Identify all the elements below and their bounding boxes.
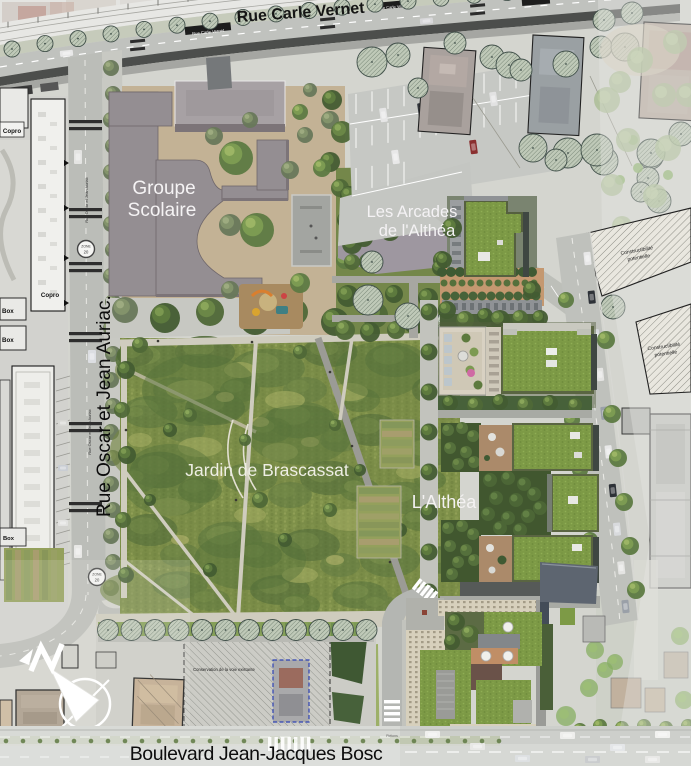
svg-text:Box: Box: [3, 536, 15, 542]
svg-text:Box: Box: [2, 337, 14, 344]
svg-text:Copro: Copro: [3, 128, 21, 135]
svg-text:Groupe: Groupe: [132, 178, 195, 199]
svg-text:Rue Oscar et Jean Auriac: Rue Oscar et Jean Auriac: [84, 177, 89, 223]
svg-text:Conservation de la voie exista: Conservation de la voie existante: [193, 667, 255, 672]
svg-text:de l'Althéa: de l'Althéa: [379, 222, 456, 240]
svg-text:ZONE: ZONE: [81, 245, 91, 249]
svg-text:Box: Box: [2, 308, 14, 315]
svg-text:Piétons: Piétons: [386, 734, 398, 738]
svg-text:Scolaire: Scolaire: [128, 200, 197, 221]
svg-text:Rue Oscar et Jean Auriac: Rue Oscar et Jean Auriac: [87, 409, 92, 455]
svg-text:Jardin de Brascassat: Jardin de Brascassat: [185, 460, 349, 480]
svg-text:20: 20: [84, 250, 89, 255]
svg-text:Rue Oscar et Jean Auriac.: Rue Oscar et Jean Auriac.: [94, 295, 115, 517]
svg-text:L'Althéa: L'Althéa: [412, 492, 477, 512]
svg-text:Boulevard Jean-Jacques Bosc: Boulevard Jean-Jacques Bosc: [130, 743, 383, 765]
svg-text:Les Arcades: Les Arcades: [367, 203, 458, 221]
svg-text:Copro: Copro: [41, 292, 59, 299]
